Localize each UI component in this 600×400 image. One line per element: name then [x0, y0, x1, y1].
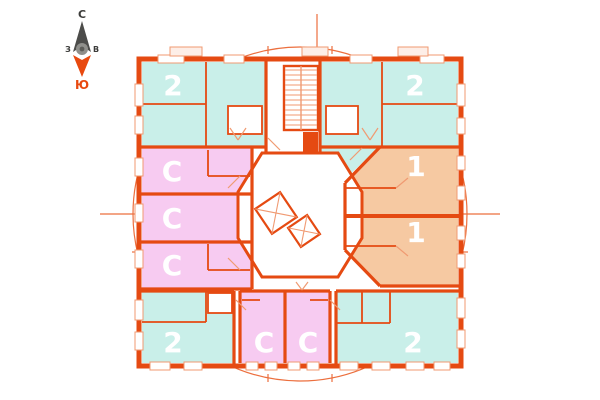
apt-1-right-upper-label[interactable]: 1: [406, 150, 425, 183]
apt-2-bottom-right-label[interactable]: 2: [403, 326, 422, 359]
studio-left-2-area[interactable]: [142, 194, 252, 242]
compass-west-label: З: [65, 45, 71, 54]
apt-2-bottom-right-area[interactable]: [336, 291, 458, 363]
balconies: [170, 47, 428, 56]
compass-rose: С З В Ю: [65, 8, 99, 92]
studio-left-2-label[interactable]: С: [162, 202, 183, 235]
studio-left-3-label[interactable]: С: [162, 249, 183, 282]
apt-2-bottom-left-label[interactable]: 2: [163, 326, 182, 359]
compass-south-arrow-icon: [73, 55, 91, 77]
compass-south-label: Ю: [75, 78, 89, 92]
studio-left-1-label[interactable]: С: [162, 155, 183, 188]
studio-bottom-1-label[interactable]: С: [254, 326, 275, 359]
studio-left-1-area[interactable]: [142, 148, 252, 194]
floor-plan-page: 2 2 1 1 С С С 2 С С 2 С З В Ю: [0, 0, 600, 400]
compass-east-label: В: [93, 45, 99, 54]
compass-hub-dot: [80, 47, 85, 52]
floor-plan-canvas: 2 2 1 1 С С С 2 С С 2 С З В Ю: [0, 0, 600, 400]
apt-1-right-lower-label[interactable]: 1: [406, 216, 425, 249]
studio-bottom-2-label[interactable]: С: [298, 326, 319, 359]
apt-2-top-left-label[interactable]: 2: [163, 69, 182, 102]
compass-north-label: С: [78, 8, 86, 21]
apt-2-top-right-label[interactable]: 2: [405, 69, 424, 102]
